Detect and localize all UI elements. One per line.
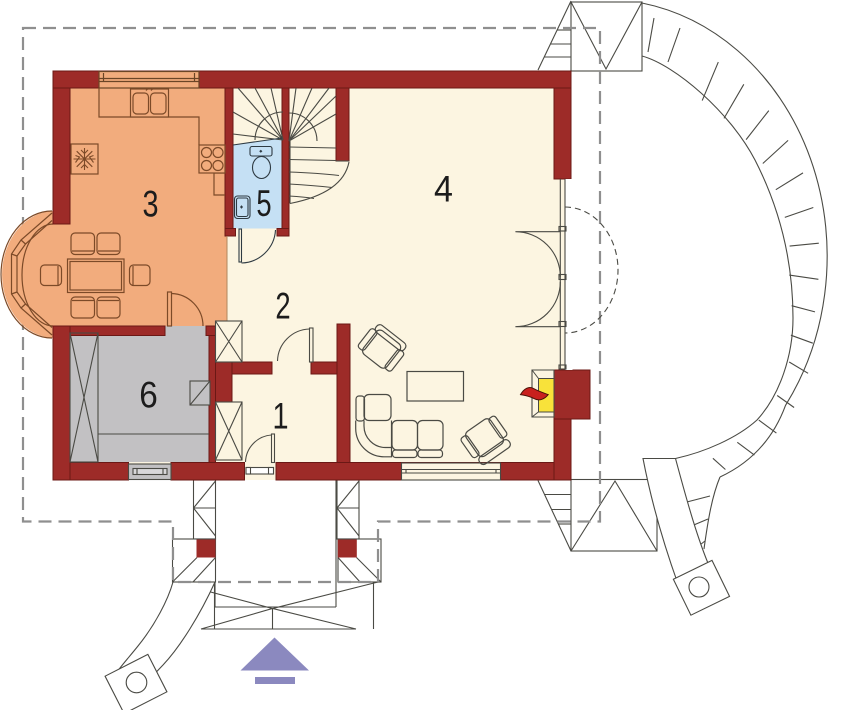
svg-text:6: 6 (139, 375, 158, 416)
svg-text:3: 3 (142, 184, 158, 225)
svg-text:5: 5 (256, 183, 271, 224)
svg-text:4: 4 (434, 168, 453, 210)
svg-text:2: 2 (275, 286, 290, 327)
svg-text:1: 1 (272, 396, 288, 437)
